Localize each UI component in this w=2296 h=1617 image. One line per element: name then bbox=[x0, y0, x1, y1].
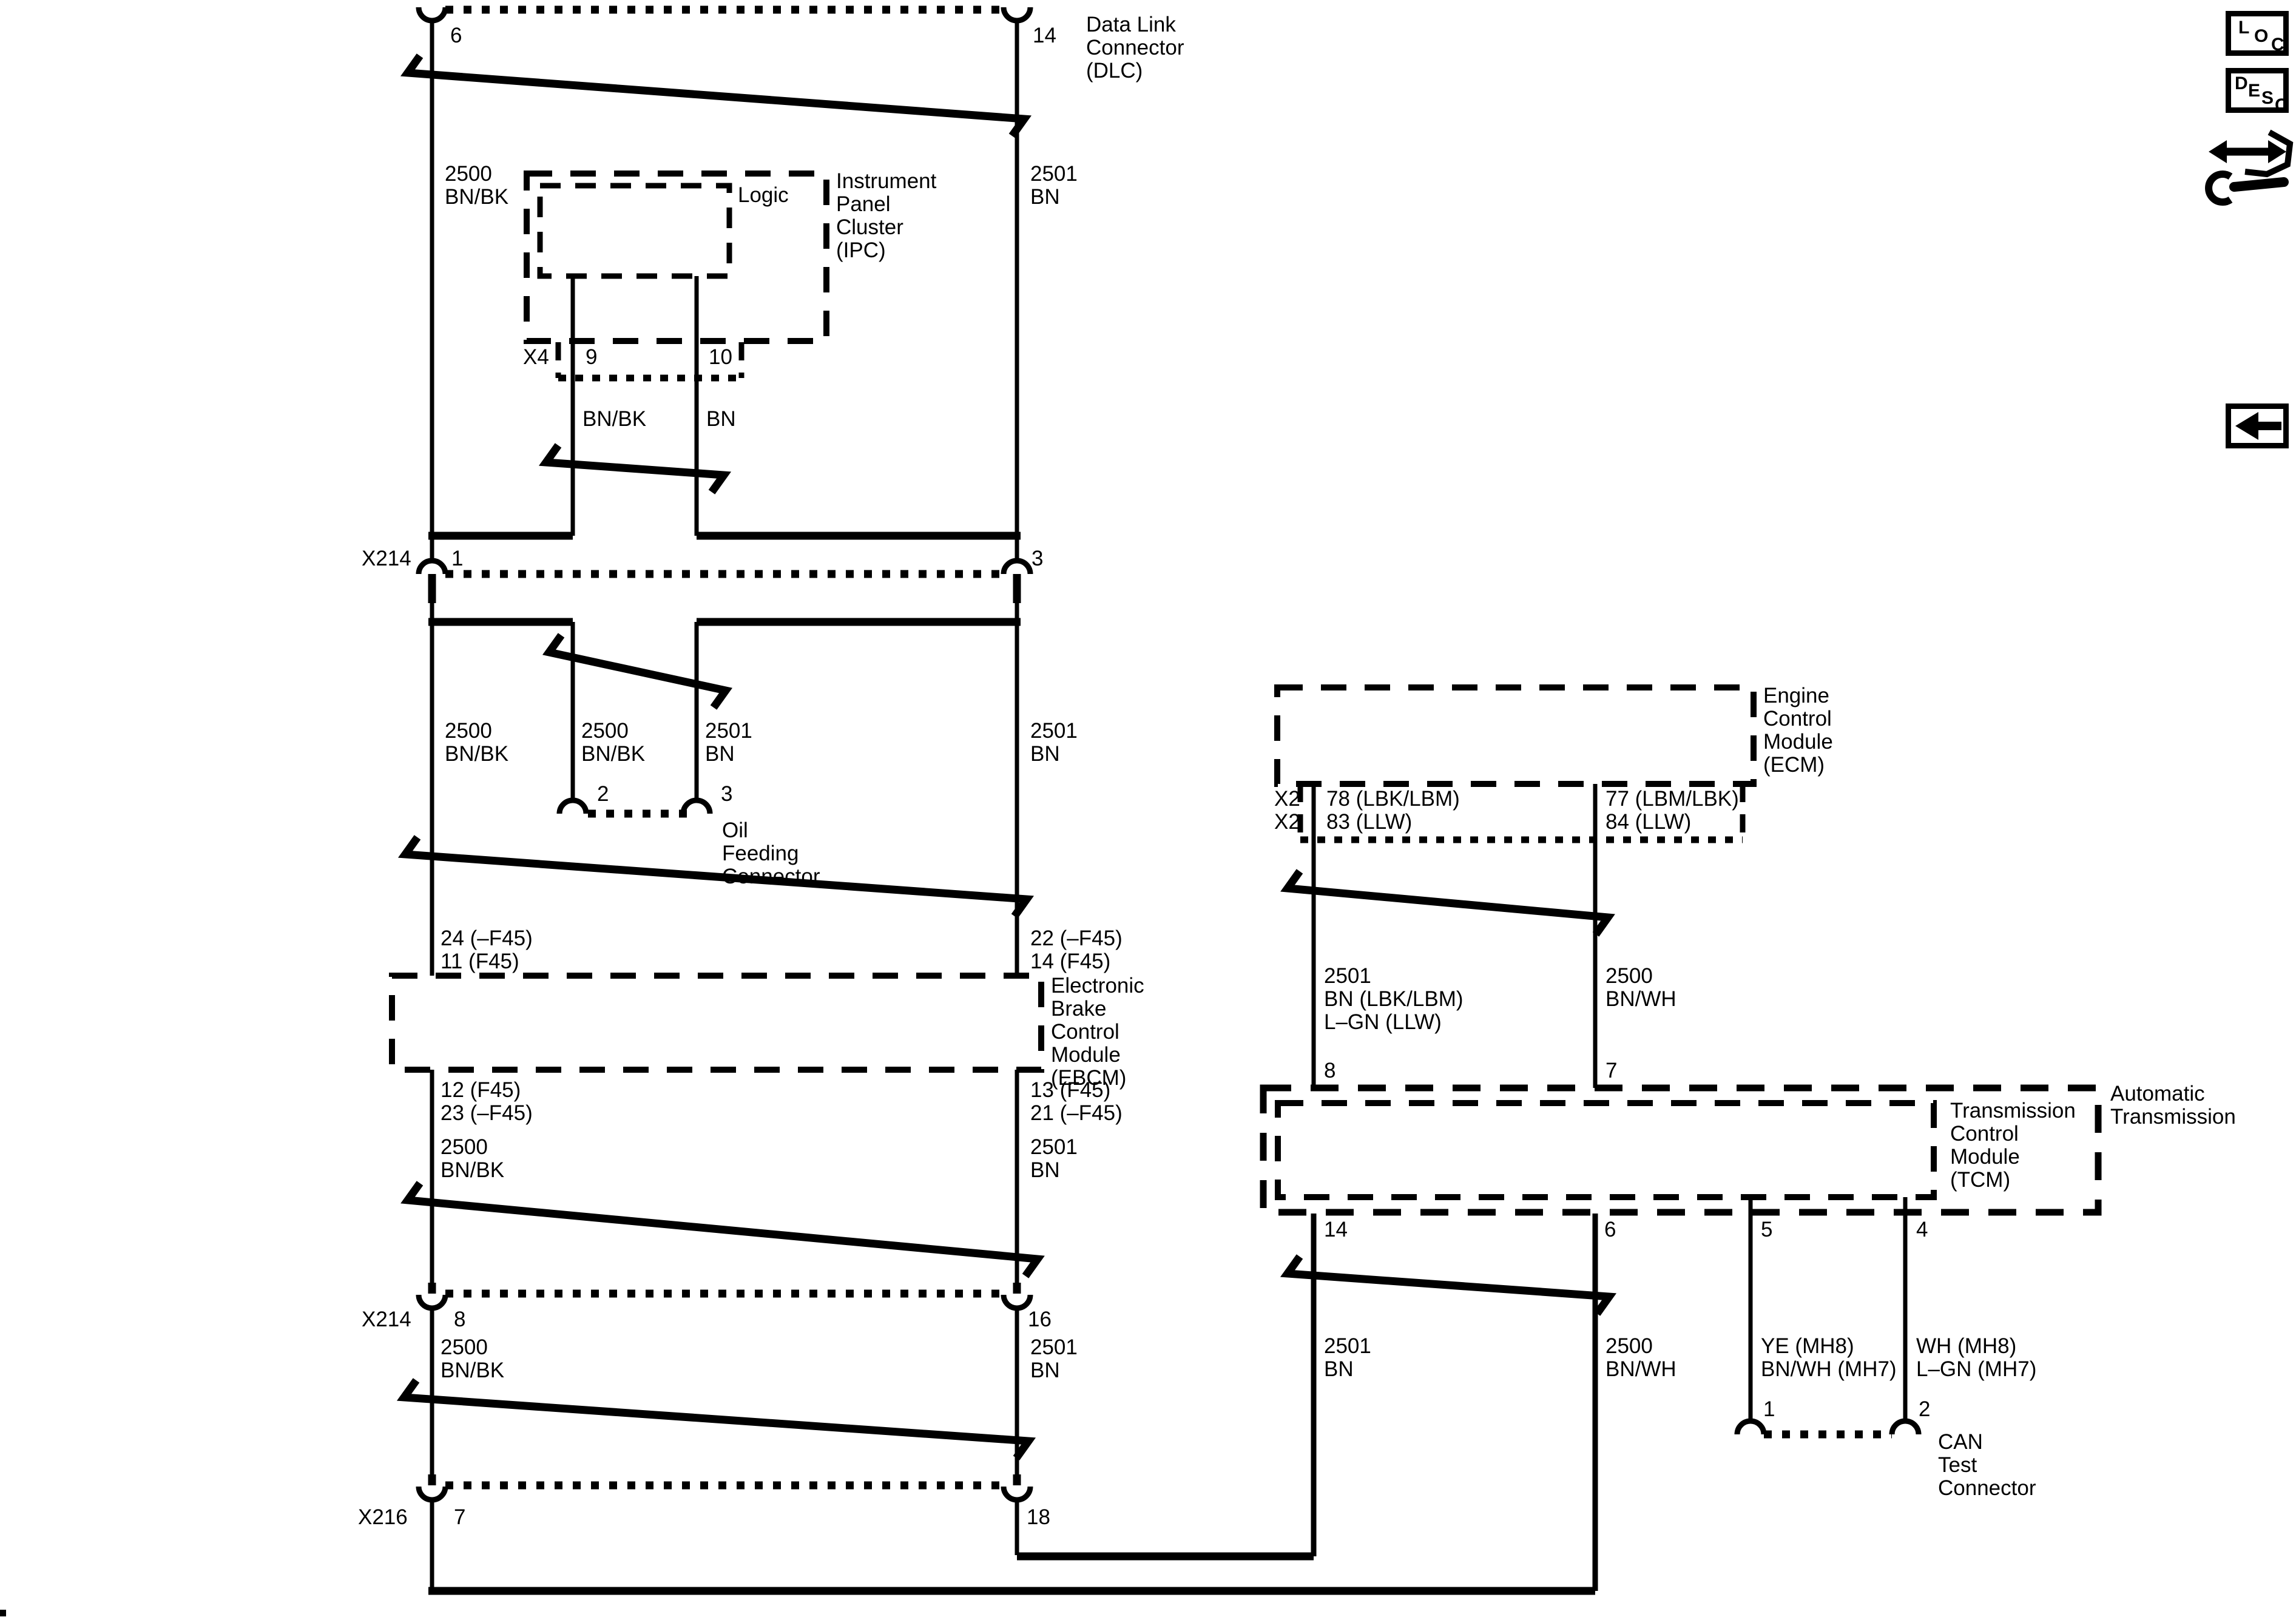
ebcm-pin12-label: 12 (F45) 23 (–F45) bbox=[441, 1079, 533, 1125]
desc-letter-c: C bbox=[2275, 96, 2288, 115]
x214b-pin16-label: 16 bbox=[1028, 1308, 1052, 1331]
ecm-pin77-label: 77 (LBM/LBK) 84 (LLW) bbox=[1606, 788, 1739, 834]
ebcm-wire2501-label: 2501 BN bbox=[1030, 1136, 1078, 1182]
ebcm-pin24-label: 24 (–F45) 11 (F45) bbox=[441, 927, 533, 973]
ecm-pin78-label: 78 (LBK/LBM) 83 (LLW) bbox=[1326, 788, 1460, 834]
oil-name-label: Oil Feeding Connector bbox=[722, 819, 820, 888]
dlc-pin6-label: 6 bbox=[450, 24, 462, 47]
x214b-pin8-label: 8 bbox=[454, 1308, 465, 1331]
oil-pin3-label: 3 bbox=[721, 783, 732, 806]
ipc-logic-box bbox=[540, 186, 729, 276]
compare-wrench-icon[interactable] bbox=[2209, 132, 2290, 202]
ipc-pin10-label: 10 bbox=[709, 346, 732, 369]
x216-pin7-label: 7 bbox=[454, 1506, 465, 1529]
desc-letter-d: D bbox=[2235, 75, 2248, 93]
oil-pin2-label: 2 bbox=[597, 783, 609, 806]
loc-letter-o: O bbox=[2254, 27, 2268, 46]
desc-button[interactable]: D E S C bbox=[2226, 68, 2289, 113]
tcm-pin6-label: 6 bbox=[1604, 1218, 1616, 1241]
ebcm-pin13-label: 13 (F45) 21 (–F45) bbox=[1030, 1079, 1123, 1125]
connector-dotted-lines bbox=[445, 10, 1892, 1485]
wire-2501-top-label: 2501 BN bbox=[1030, 163, 1078, 209]
ebcm-box bbox=[392, 976, 1041, 1070]
tcm-wire2500-out-label: 2500 BN/WH bbox=[1606, 1335, 1676, 1381]
ipc-logic-label: Logic bbox=[738, 184, 789, 207]
automatic-transmission-label: Automatic Transmission bbox=[2110, 1082, 2236, 1129]
can-pin2-label: 2 bbox=[1919, 1398, 1930, 1421]
can-pin1-label: 1 bbox=[1763, 1398, 1775, 1421]
ecm-x2-label: X2 X2 bbox=[1274, 788, 1300, 834]
dlc-pin14-label: 14 bbox=[1033, 24, 1056, 47]
x214b-label: X214 bbox=[362, 1308, 411, 1331]
x214a-pin1-label: 1 bbox=[451, 547, 463, 570]
tcm-pin5-label: 5 bbox=[1761, 1218, 1772, 1241]
wire-wh-mh8-label: WH (MH8) L–GN (MH7) bbox=[1916, 1335, 2036, 1381]
loc-letter-l: L bbox=[2238, 19, 2249, 37]
wire-ye-mh8-label: YE (MH8) BN/WH (MH7) bbox=[1761, 1335, 1897, 1381]
dlc-name-label: Data Link Connector (DLC) bbox=[1086, 13, 1184, 83]
wire-2500-top-label: 2500 BN/BK bbox=[445, 163, 508, 209]
x216-label: X216 bbox=[358, 1506, 408, 1529]
back-arrow-button[interactable] bbox=[2226, 403, 2289, 448]
x214b-wire2500-label: 2500 BN/BK bbox=[441, 1336, 504, 1382]
can-name-label: CAN Test Connector bbox=[1938, 1431, 2036, 1500]
x216-pin18-label: 18 bbox=[1027, 1506, 1050, 1529]
tcm-box bbox=[1278, 1103, 1934, 1197]
page-corner-mark bbox=[0, 1610, 6, 1616]
ebcm-pin22-label: 22 (–F45) 14 (F45) bbox=[1030, 927, 1123, 973]
junction-bars bbox=[428, 536, 1595, 1591]
ecm-name-label: Engine Control Module (ECM) bbox=[1763, 684, 1833, 777]
ipc-x4-label: X4 bbox=[523, 346, 549, 369]
tcm-name-label: Transmission Control Module (TCM) bbox=[1950, 1099, 2076, 1192]
wire-2500-main-mid-label: 2500 BN/BK bbox=[445, 720, 508, 766]
loc-button[interactable]: L O C bbox=[2226, 11, 2289, 56]
ipc-name-label: Instrument Panel Cluster (IPC) bbox=[836, 170, 936, 262]
desc-letter-s: S bbox=[2261, 89, 2274, 107]
x214a-label: X214 bbox=[362, 547, 411, 570]
wire-bnbk-label: BN/BK bbox=[582, 408, 646, 431]
tcm-wire2501-out-label: 2501 BN bbox=[1324, 1335, 1371, 1381]
desc-letter-e: E bbox=[2248, 82, 2260, 100]
ebcm-wire2500-label: 2500 BN/BK bbox=[441, 1136, 504, 1182]
tcm-pin8-label: 8 bbox=[1324, 1059, 1335, 1082]
wire-2500-branch-mid-label: 2500 BN/BK bbox=[581, 720, 645, 766]
ipc-pin9-label: 9 bbox=[586, 346, 597, 369]
tcm-pin7-label: 7 bbox=[1606, 1059, 1617, 1082]
ebcm-name-label: Electronic Brake Control Module (EBCM) bbox=[1051, 974, 1144, 1090]
tcm-wire2501-in-label: 2501 BN (LBK/LBM) L–GN (LLW) bbox=[1324, 965, 1464, 1034]
wire-2501-main-mid-label: 2501 BN bbox=[1030, 720, 1078, 766]
wire-bn-label: BN bbox=[706, 408, 736, 431]
ecm-box bbox=[1277, 687, 1754, 784]
wire-2501-branch-mid-label: 2501 BN bbox=[705, 720, 752, 766]
tcm-pin14-label: 14 bbox=[1324, 1218, 1348, 1241]
wiring-diagram-page: 6 14 Data Link Connector (DLC) 2500 BN/B… bbox=[0, 0, 2296, 1617]
tcm-wire2500-in-label: 2500 BN/WH bbox=[1606, 965, 1676, 1011]
tcm-pin4-label: 4 bbox=[1916, 1218, 1928, 1241]
x214a-pin3-label: 3 bbox=[1032, 547, 1043, 570]
x214b-wire2501-label: 2501 BN bbox=[1030, 1336, 1078, 1382]
loc-letter-c: C bbox=[2271, 36, 2284, 54]
